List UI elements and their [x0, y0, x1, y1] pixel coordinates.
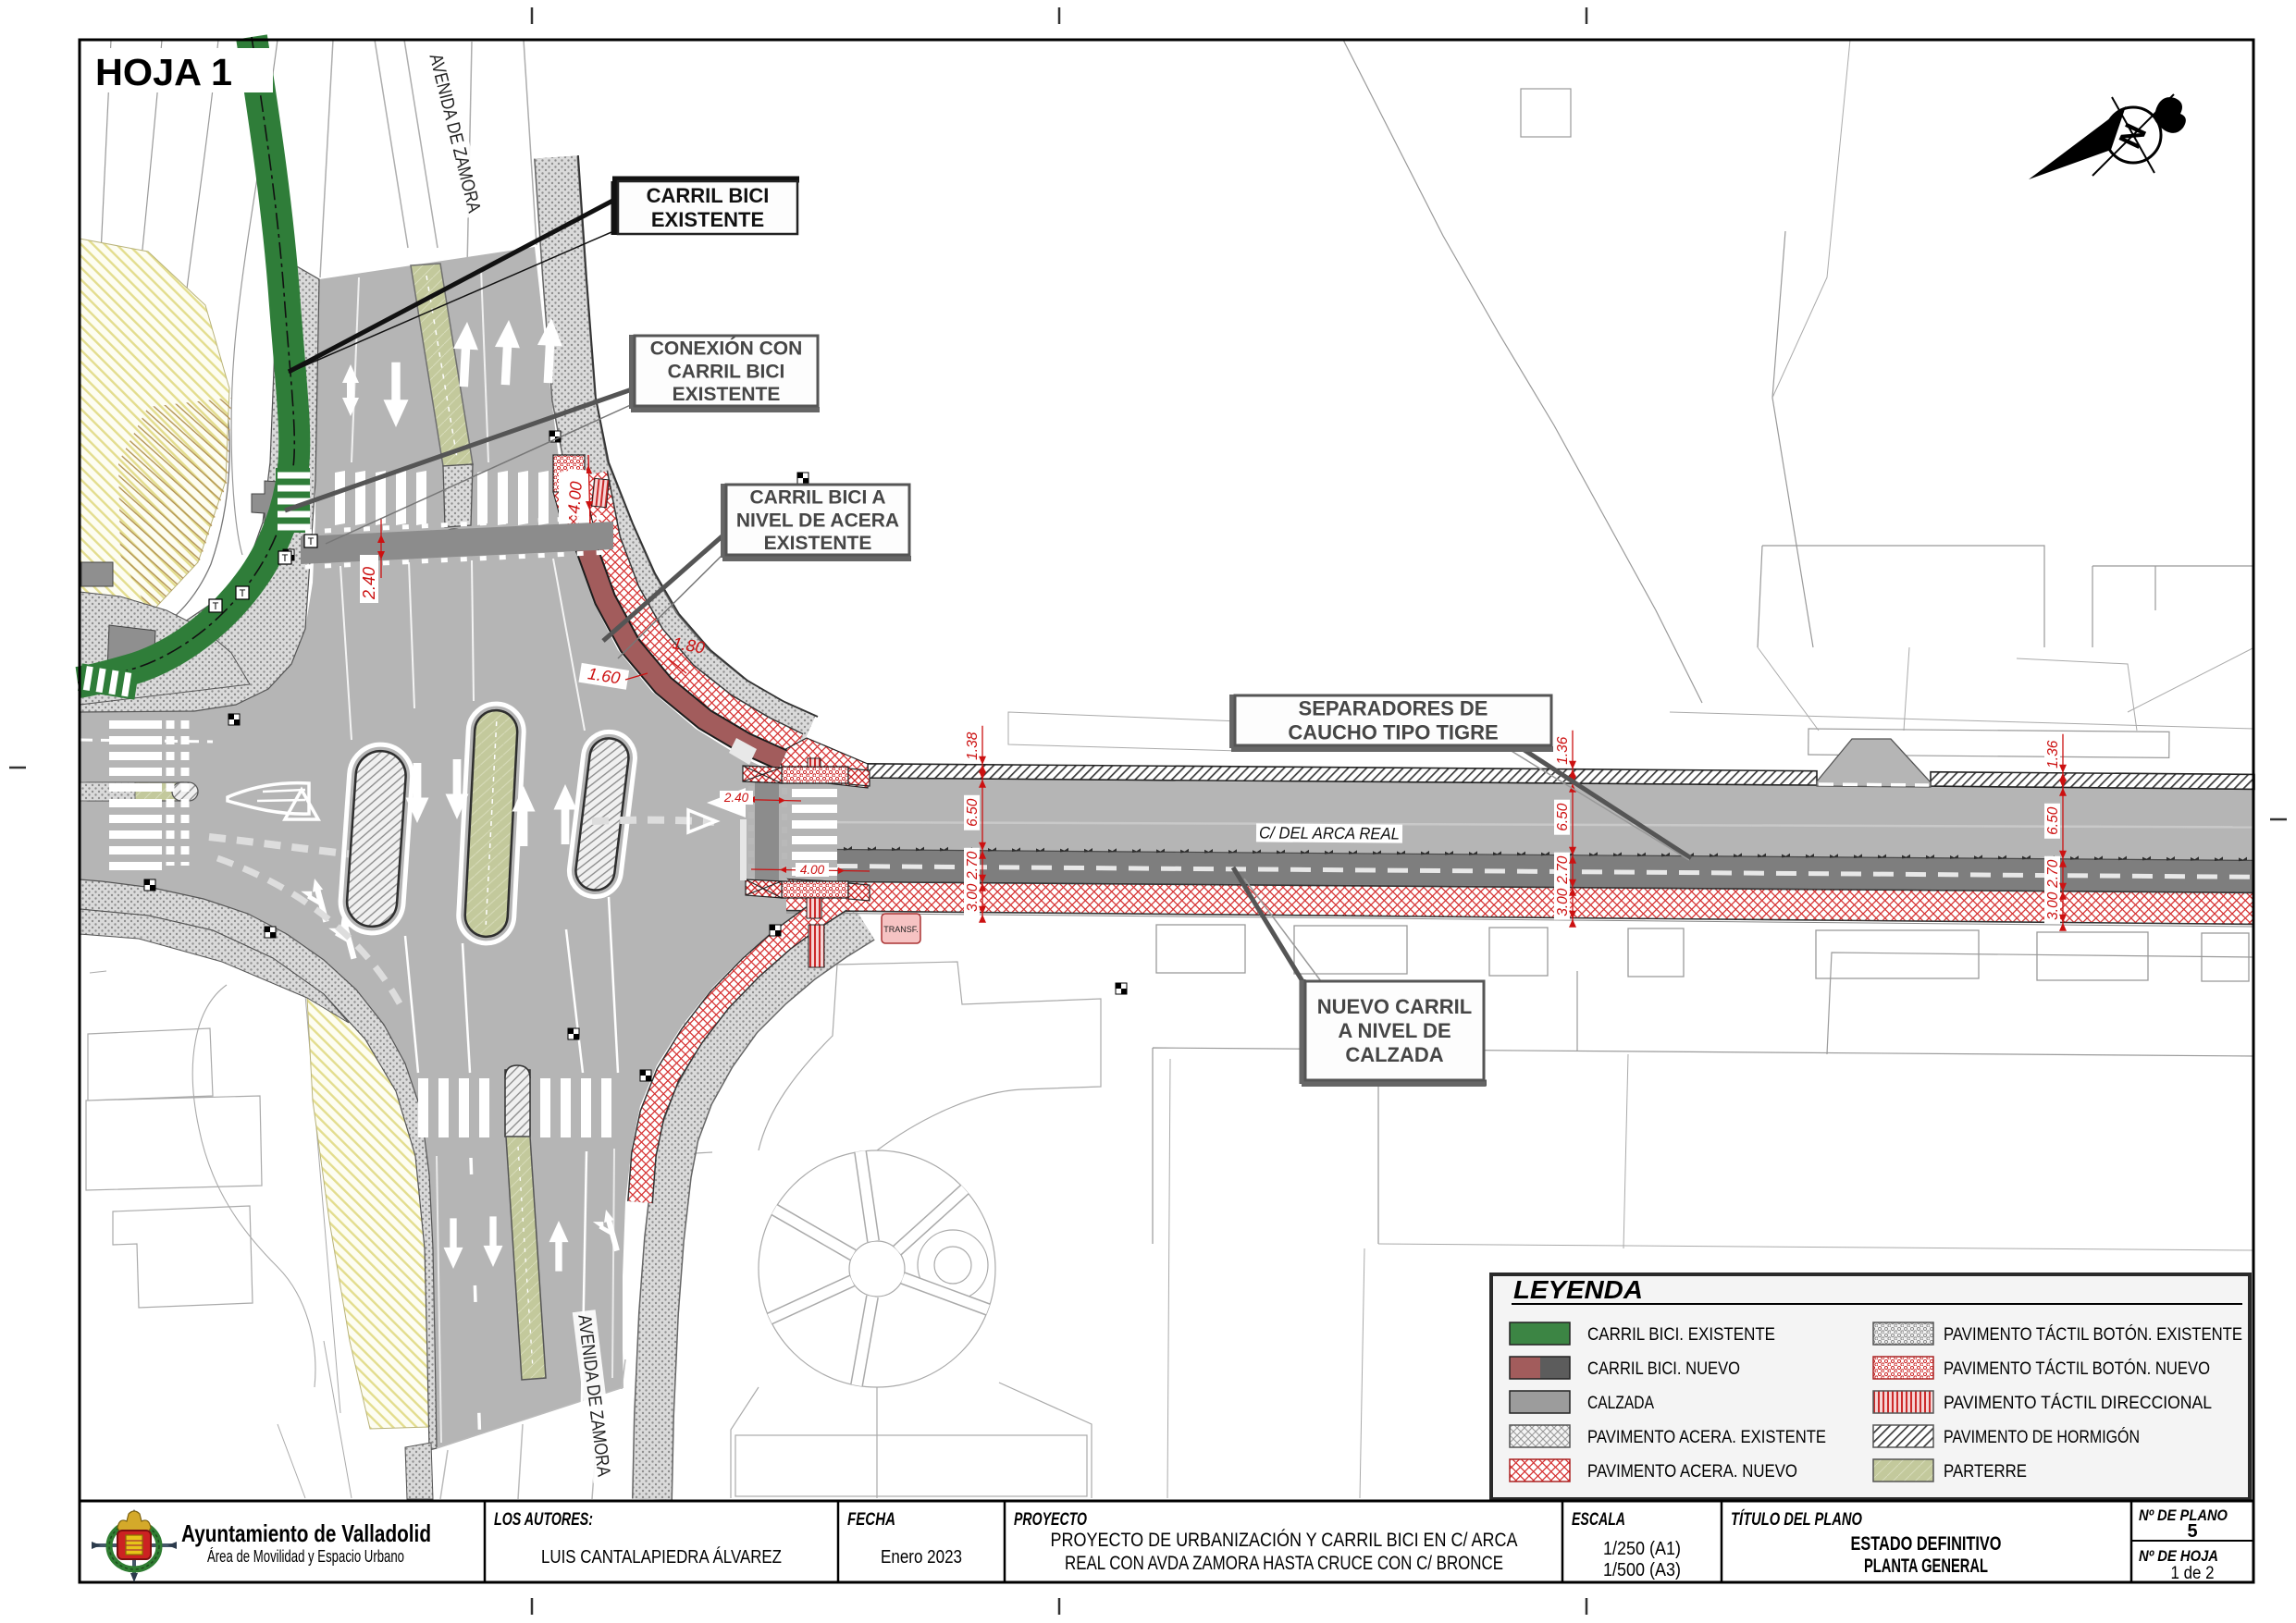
- svg-text:LUIS CANTALAPIEDRA ÁLVAREZ: LUIS CANTALAPIEDRA ÁLVAREZ: [541, 1546, 782, 1568]
- svg-text:HOJA 1: HOJA 1: [95, 51, 232, 93]
- svg-text:PLANTA GENERAL: PLANTA GENERAL: [1864, 1555, 1988, 1577]
- svg-text:6.50: 6.50: [965, 798, 981, 827]
- svg-text:PAVIMENTO ACERA. EXISTENTE: PAVIMENTO ACERA. EXISTENTE: [1587, 1428, 1826, 1447]
- svg-text:ESCALA: ESCALA: [1572, 1510, 1625, 1530]
- svg-text:2.40: 2.40: [360, 567, 378, 600]
- svg-text:CALZADA: CALZADA: [1587, 1394, 1654, 1413]
- svg-text:3.00: 3.00: [965, 883, 981, 912]
- svg-text:A NIVEL DE: A NIVEL DE: [1338, 1019, 1450, 1042]
- svg-text:CARRIL BICI. EXISTENTE: CARRIL BICI. EXISTENTE: [1587, 1325, 1775, 1345]
- svg-text:CARRIL BICI. NUEVO: CARRIL BICI. NUEVO: [1587, 1359, 1740, 1379]
- svg-text:T: T: [240, 588, 246, 599]
- svg-text:1/500 (A3): 1/500 (A3): [1603, 1560, 1681, 1580]
- svg-text:T: T: [308, 536, 315, 547]
- svg-text:4.00: 4.00: [564, 481, 586, 515]
- svg-text:ESTADO DEFINITIVO: ESTADO DEFINITIVO: [1851, 1533, 2002, 1555]
- svg-text:SEPARADORES DE: SEPARADORES DE: [1299, 697, 1488, 720]
- svg-text:CARRIL BICI A: CARRIL BICI A: [750, 487, 886, 509]
- svg-text:AVENIDA DE ZAMORA: AVENIDA DE ZAMORA: [426, 52, 485, 215]
- svg-text:LEYENDA: LEYENDA: [1513, 1275, 1643, 1304]
- svg-text:Enero 2023: Enero 2023: [881, 1547, 962, 1568]
- svg-text:REAL CON AVDA ZAMORA HASTA CRU: REAL CON AVDA ZAMORA HASTA CRUCE CON C/ …: [1065, 1553, 1503, 1574]
- svg-text:PROYECTO DE URBANIZACIÓN Y CAR: PROYECTO DE URBANIZACIÓN Y CARRIL BICI E…: [1051, 1530, 1518, 1551]
- svg-text:1 de 2: 1 de 2: [2171, 1564, 2215, 1583]
- svg-text:6.50: 6.50: [1555, 803, 1571, 831]
- svg-text:2.70: 2.70: [1555, 855, 1571, 885]
- svg-text:PAVIMENTO DE HORMIGÓN: PAVIMENTO DE HORMIGÓN: [1944, 1427, 2140, 1447]
- svg-text:EXISTENTE: EXISTENTE: [651, 208, 764, 231]
- svg-text:1/250 (A1): 1/250 (A1): [1603, 1539, 1681, 1559]
- svg-text:Área de Movilidad y Espacio Ur: Área de Movilidad y Espacio Urbano: [207, 1547, 404, 1566]
- svg-text:PROYECTO: PROYECTO: [1014, 1510, 1087, 1530]
- svg-text:TRANSF.: TRANSF.: [883, 925, 919, 934]
- svg-text:4.00: 4.00: [800, 863, 825, 877]
- svg-text:2.70: 2.70: [2045, 859, 2061, 889]
- svg-text:PARTERRE: PARTERRE: [1944, 1462, 2027, 1482]
- svg-text:5: 5: [2187, 1521, 2197, 1542]
- svg-text:CARRIL BICI: CARRIL BICI: [668, 361, 785, 382]
- svg-text:Ayuntamiento de Valladolid: Ayuntamiento de Valladolid: [181, 1519, 431, 1547]
- svg-text:3.00: 3.00: [2045, 891, 2061, 920]
- svg-text:PAVIMENTO TÁCTIL DIRECCIONAL: PAVIMENTO TÁCTIL DIRECCIONAL: [1944, 1394, 2212, 1413]
- svg-text:EXISTENTE: EXISTENTE: [764, 533, 872, 554]
- svg-text:CONEXIÓN CON: CONEXIÓN CON: [650, 338, 803, 360]
- svg-text:1.36: 1.36: [2045, 740, 2061, 768]
- svg-text:LOS AUTORES:: LOS AUTORES:: [494, 1510, 593, 1530]
- svg-text:C/ DEL ARCA REAL: C/ DEL ARCA REAL: [1259, 823, 1400, 842]
- svg-text:CALZADA: CALZADA: [1345, 1043, 1443, 1066]
- svg-text:6.50: 6.50: [2045, 806, 2061, 835]
- svg-text:PAVIMENTO ACERA. NUEVO: PAVIMENTO ACERA. NUEVO: [1587, 1462, 1797, 1482]
- svg-text:TÍTULO DEL PLANO: TÍTULO DEL PLANO: [1731, 1509, 1862, 1530]
- svg-text:2.70: 2.70: [965, 851, 981, 880]
- svg-text:2.40: 2.40: [723, 791, 749, 805]
- svg-text:FECHA: FECHA: [847, 1510, 895, 1530]
- svg-text:NUEVO CARRIL: NUEVO CARRIL: [1317, 995, 1472, 1018]
- svg-text:EXISTENTE: EXISTENTE: [673, 384, 781, 405]
- svg-text:CAUCHO TIPO TIGRE: CAUCHO TIPO TIGRE: [1288, 721, 1498, 744]
- svg-text:Nº DE PLANO: Nº DE PLANO: [2139, 1506, 2228, 1524]
- svg-text:PAVIMENTO TÁCTIL BOTÓN. NUEVO: PAVIMENTO TÁCTIL BOTÓN. NUEVO: [1944, 1359, 2210, 1379]
- svg-text:3.00: 3.00: [1555, 888, 1571, 916]
- svg-text:1.36: 1.36: [1555, 736, 1571, 765]
- svg-text:1.38: 1.38: [965, 732, 981, 760]
- svg-text:T: T: [213, 601, 219, 612]
- svg-text:PAVIMENTO TÁCTIL BOTÓN. EXISTE: PAVIMENTO TÁCTIL BOTÓN. EXISTENTE: [1944, 1324, 2242, 1345]
- svg-text:NIVEL DE ACERA: NIVEL DE ACERA: [736, 510, 899, 531]
- svg-text:Nº DE HOJA: Nº DE HOJA: [2139, 1547, 2218, 1565]
- svg-text:CARRIL BICI: CARRIL BICI: [647, 184, 770, 207]
- svg-text:T: T: [282, 553, 289, 564]
